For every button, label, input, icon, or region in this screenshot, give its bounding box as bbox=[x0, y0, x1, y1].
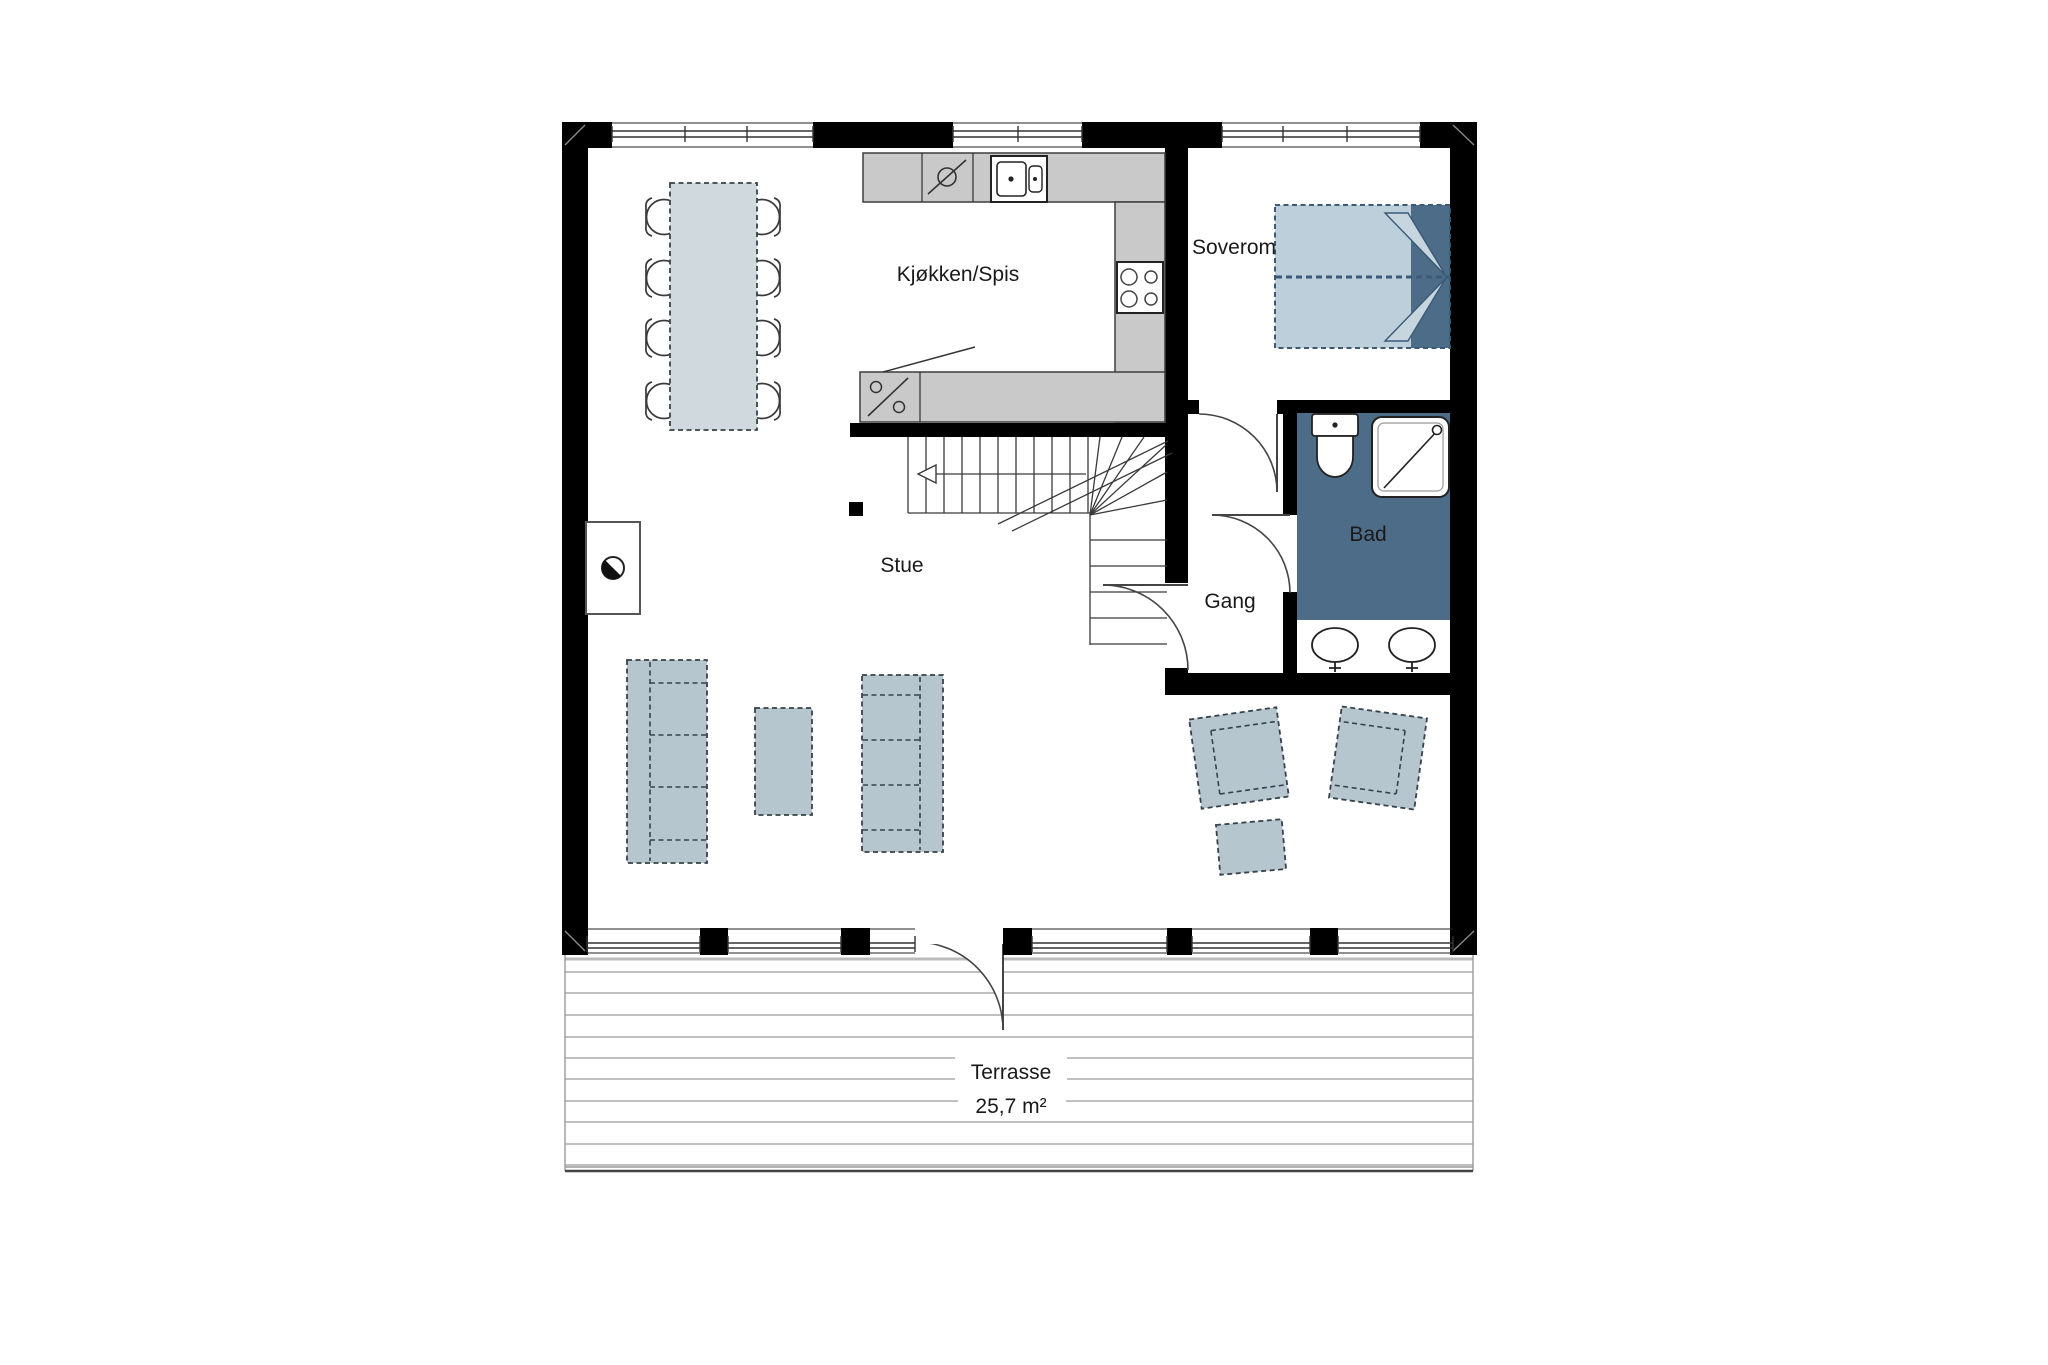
kitchen-label: Kjøkken/Spis bbox=[897, 263, 1020, 286]
wall-bottom-seg2 bbox=[700, 928, 728, 955]
wall-left bbox=[562, 122, 588, 955]
floor-plan-page: Terrasse 25,7 m² bbox=[0, 0, 2048, 1365]
sofa-left bbox=[627, 660, 707, 863]
dining-table bbox=[670, 183, 757, 430]
wall-top-seg3 bbox=[1082, 122, 1222, 148]
sofa-right bbox=[862, 675, 943, 852]
wall-kitchen-bedroom bbox=[1165, 148, 1188, 583]
wall-top-seg2 bbox=[813, 122, 953, 148]
wall-right bbox=[1450, 122, 1477, 955]
wall-kitchen-living bbox=[850, 423, 1188, 437]
coffee-table bbox=[755, 708, 812, 815]
wall-hall-bath-bottom bbox=[1167, 673, 1477, 695]
double-bed bbox=[1275, 205, 1450, 348]
terrace: Terrasse 25,7 m² bbox=[565, 955, 1474, 1171]
terrace-label: Terrasse bbox=[971, 1061, 1052, 1084]
wall-bottom-seg5 bbox=[1167, 928, 1192, 955]
wall-bottom-seg4 bbox=[1003, 928, 1032, 955]
wall-bedroom-hall-a bbox=[1188, 400, 1199, 414]
shower-icon bbox=[1372, 417, 1449, 497]
wood-stove bbox=[586, 522, 640, 614]
floor-plan-drawing: Terrasse 25,7 m² bbox=[0, 0, 2048, 1365]
terrace-area-label: 25,7 m² bbox=[975, 1095, 1046, 1118]
toilet-icon bbox=[1312, 414, 1358, 477]
column bbox=[849, 502, 863, 516]
armchair-left bbox=[1189, 707, 1289, 808]
hallway-label: Gang bbox=[1204, 590, 1255, 613]
footstool bbox=[1216, 819, 1286, 875]
cooktop-icon bbox=[1117, 262, 1163, 313]
sink-basin-icon bbox=[1389, 628, 1435, 662]
wall-bottom-seg6 bbox=[1310, 928, 1338, 955]
wall-hall-bath-a bbox=[1283, 413, 1297, 515]
wall-bedroom-bath bbox=[1277, 400, 1450, 414]
wall-hall-bath-b bbox=[1283, 592, 1297, 673]
bathroom-label: Bad bbox=[1349, 523, 1386, 546]
armchair-right bbox=[1329, 706, 1427, 809]
bedroom-label: Soverom bbox=[1192, 236, 1276, 259]
sink-basin-icon bbox=[1312, 628, 1358, 662]
living-room-label: Stue bbox=[880, 554, 923, 577]
wall-bottom-seg3 bbox=[841, 928, 870, 955]
kitchen-sink-icon bbox=[991, 156, 1047, 202]
